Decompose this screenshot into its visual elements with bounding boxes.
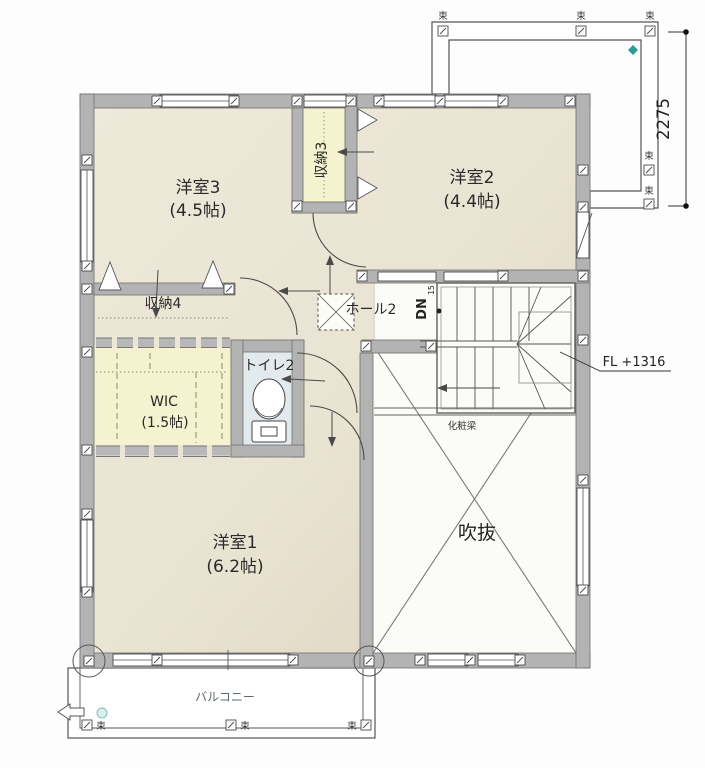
post-icon: [644, 199, 654, 209]
room-label-bedroom1: 洋室1: [213, 533, 258, 553]
pillar-icon: [292, 201, 302, 211]
pillar-icon: [498, 96, 508, 106]
pillar-icon: [82, 347, 92, 357]
post-icon: [576, 26, 586, 36]
post-label: 束: [576, 11, 586, 22]
window-hall-rail-a: [378, 272, 436, 281]
pillar-icon: [465, 655, 475, 665]
window-top-closet3: [304, 95, 346, 107]
window-top-bedroom2b: [444, 95, 500, 107]
post-label: 束: [96, 721, 106, 732]
pillar-icon: [288, 655, 298, 665]
drain-icon: [97, 708, 107, 718]
room-label-closet4: 収納4: [145, 296, 182, 312]
pillar-icon: [578, 165, 588, 175]
pillar-icon: [364, 656, 374, 666]
post-icon: [645, 26, 655, 36]
pillar-icon: [374, 96, 384, 106]
pillar-icon: [82, 261, 92, 271]
floor-level-label: FL +1316: [603, 355, 666, 370]
post-label: 束: [438, 11, 448, 22]
pillar-icon: [415, 655, 425, 665]
window-bottom-void-a: [428, 654, 468, 666]
beam-label: 化粧梁: [448, 420, 477, 432]
dimension-value: 2275: [654, 98, 673, 140]
window-left-bedroom1: [81, 520, 93, 592]
pillar-icon: [152, 655, 162, 665]
pillar-icon: [578, 335, 588, 345]
room-area-wic: (1.5帖): [141, 415, 188, 431]
room-area-bedroom3: (4.5帖): [169, 201, 226, 221]
post-icon: [82, 720, 92, 730]
pillar-icon: [82, 587, 92, 597]
room-label-toilet: トイレ2: [244, 358, 295, 374]
post-label: 束: [644, 186, 654, 197]
room-label-hall: ホール2: [346, 302, 397, 318]
room-area-bedroom2: (4.4帖): [443, 192, 500, 212]
room-label-void: 吹抜: [458, 522, 496, 544]
floor-plan-page: 束 束 束 束 束 束 束 束 2275 FL +1316 洋室3 (4.5帖)…: [0, 0, 705, 768]
pillar-icon: [82, 509, 92, 519]
room-label-wic: WIC: [150, 394, 178, 410]
post-icon: [226, 720, 236, 730]
pillar-icon: [292, 96, 302, 106]
pillar-icon: [346, 201, 356, 211]
floor-plan-canvas: 束 束 束 束 束 束 束 束 2275 FL +1316 洋室3 (4.5帖)…: [0, 0, 705, 768]
stair-count-label: 15: [427, 285, 436, 295]
room-label-bedroom3: 洋室3: [176, 178, 221, 198]
pillar-icon: [82, 284, 92, 294]
room-label-closet3: 収納3: [314, 142, 330, 179]
post-icon: [438, 26, 448, 36]
pillar-icon: [152, 96, 162, 106]
survey-point-icon: [628, 45, 638, 55]
pillar-icon: [361, 341, 371, 351]
room-label-bedroom2: 洋室2: [450, 168, 495, 188]
pillar-icon: [515, 655, 525, 665]
pillar-icon: [578, 585, 588, 595]
staircase: [420, 283, 575, 413]
window-hall-rail-b: [444, 272, 502, 281]
post-icon: [361, 720, 371, 730]
pillar-icon: [224, 284, 234, 294]
post-label: 束: [645, 11, 655, 22]
pillar-icon: [357, 271, 367, 281]
stair-start-dot: [437, 309, 442, 314]
window-top-bedroom2a: [382, 95, 436, 107]
pillar-icon: [498, 271, 508, 281]
post-label: 束: [347, 721, 357, 732]
pillar-icon: [426, 341, 436, 351]
pillar-icon: [346, 96, 356, 106]
window-top-bedroom3: [160, 95, 238, 107]
stair-down-label: DN: [415, 298, 430, 320]
pillar-icon: [82, 445, 92, 455]
post-label: 束: [240, 721, 250, 732]
room-label-balcony: バルコニー: [195, 690, 255, 704]
pillar-icon: [578, 475, 588, 485]
post-label: 束: [644, 151, 654, 162]
pillar-icon: [82, 155, 92, 165]
pillar-icon: [578, 271, 588, 281]
pillar-icon: [84, 656, 94, 666]
pillar-icon: [565, 96, 575, 106]
window-bottom-void-b: [478, 654, 518, 666]
pillar-icon: [578, 202, 588, 212]
window-left-bedroom3: [81, 170, 93, 262]
pillar-icon: [229, 96, 239, 106]
pillar-icon: [435, 96, 445, 106]
post-icon: [644, 165, 654, 175]
dimension-2275: 2275: [654, 29, 689, 209]
window-right-void: [577, 488, 589, 586]
room-area-bedroom1: (6.2帖): [206, 557, 263, 577]
toilet-icon: [252, 379, 286, 442]
